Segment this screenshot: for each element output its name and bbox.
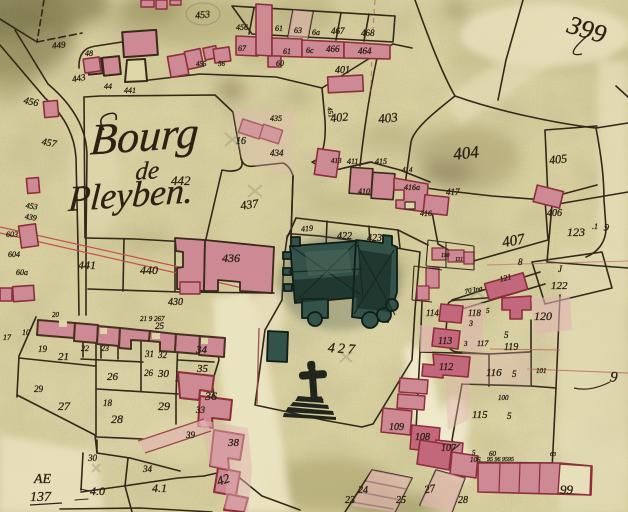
svg-text:413: 413 [331, 157, 342, 165]
svg-text:18: 18 [103, 398, 113, 408]
svg-text:48: 48 [85, 49, 93, 58]
svg-text:441: 441 [124, 86, 136, 95]
svg-text:116: 116 [486, 367, 502, 379]
svg-text:436: 436 [222, 251, 240, 265]
svg-text:3: 3 [463, 340, 468, 348]
svg-text:8: 8 [518, 257, 523, 267]
svg-text:61: 61 [283, 47, 291, 56]
svg-text:35: 35 [196, 363, 209, 375]
svg-text:34: 34 [142, 464, 153, 474]
svg-text:21: 21 [58, 351, 69, 363]
svg-text:100: 100 [498, 394, 509, 402]
svg-text:107: 107 [441, 443, 457, 454]
svg-text:38: 38 [227, 437, 240, 449]
svg-text:20: 20 [52, 311, 60, 319]
svg-text:118: 118 [468, 308, 481, 318]
svg-text:23: 23 [101, 344, 109, 353]
svg-text:4.1: 4.1 [152, 481, 167, 495]
svg-text:29: 29 [158, 399, 170, 413]
svg-text:28: 28 [111, 412, 123, 426]
svg-text:427: 427 [327, 341, 358, 358]
svg-text:32: 32 [157, 350, 168, 360]
svg-text:442: 442 [171, 173, 191, 188]
svg-text:404: 404 [452, 142, 480, 164]
svg-text:453: 453 [25, 201, 38, 212]
svg-text:63: 63 [550, 452, 556, 458]
svg-text:417: 417 [446, 187, 460, 197]
svg-text:109: 109 [389, 422, 404, 433]
svg-text:6c: 6c [306, 46, 314, 55]
svg-text:120: 120 [534, 309, 552, 323]
svg-text:410: 410 [358, 187, 370, 196]
svg-text:16: 16 [236, 136, 246, 147]
svg-text:405: 405 [548, 151, 567, 167]
svg-text:39: 39 [185, 430, 196, 440]
svg-text:.1: .1 [592, 222, 598, 231]
svg-text:95 96 9595: 95 96 9595 [487, 457, 514, 463]
svg-text:113: 113 [438, 336, 452, 347]
svg-text:416a: 416a [404, 183, 420, 192]
svg-text:29: 29 [34, 384, 44, 394]
svg-text:453: 453 [195, 9, 211, 22]
svg-text:106: 106 [470, 456, 481, 464]
svg-text:416: 416 [420, 209, 432, 218]
svg-text:439: 439 [24, 212, 37, 223]
svg-text:422: 422 [337, 231, 352, 242]
svg-text:5: 5 [512, 369, 517, 379]
svg-text:22: 22 [81, 344, 89, 353]
svg-text:28: 28 [458, 495, 468, 506]
svg-text:10: 10 [22, 328, 30, 337]
svg-text:401: 401 [335, 65, 350, 76]
svg-text:26: 26 [107, 371, 119, 383]
svg-text:419: 419 [301, 224, 314, 234]
svg-text:5: 5 [486, 307, 490, 315]
svg-text:67: 67 [238, 44, 247, 53]
svg-text:467: 467 [331, 26, 345, 36]
svg-text:434: 434 [270, 148, 284, 158]
svg-text:27: 27 [58, 399, 71, 413]
svg-text:44: 44 [104, 82, 112, 91]
svg-text:112: 112 [439, 362, 453, 373]
svg-text:5: 5 [504, 330, 509, 340]
svg-text:114: 114 [426, 308, 439, 318]
svg-text:4.0: 4.0 [90, 484, 105, 498]
svg-text:6a: 6a [312, 28, 320, 37]
svg-text:108: 108 [415, 432, 430, 443]
svg-text:423: 423 [367, 233, 382, 244]
svg-text:468: 468 [361, 28, 375, 38]
svg-text:117: 117 [477, 339, 489, 348]
svg-text:411: 411 [347, 157, 358, 166]
svg-text:456: 456 [236, 23, 248, 32]
svg-text:17: 17 [3, 333, 12, 342]
svg-text:455: 455 [196, 60, 207, 68]
svg-text:AE: AE [33, 472, 52, 487]
svg-text:23: 23 [345, 495, 355, 506]
svg-text:122: 122 [551, 280, 568, 292]
svg-text:466: 466 [326, 44, 340, 54]
svg-text:437: 437 [239, 196, 260, 213]
svg-text:406: 406 [547, 208, 562, 219]
svg-text:111: 111 [455, 257, 463, 263]
svg-text:464: 464 [358, 46, 372, 56]
svg-text:19: 19 [38, 344, 48, 354]
svg-text:435: 435 [270, 114, 282, 123]
svg-text:33: 33 [195, 405, 206, 415]
svg-text:56: 56 [218, 60, 226, 68]
svg-text:449: 449 [52, 39, 67, 50]
svg-text:30: 30 [157, 368, 170, 380]
svg-text:415: 415 [375, 157, 387, 166]
svg-text:34: 34 [195, 344, 208, 356]
svg-text:115: 115 [472, 409, 488, 421]
svg-text:31: 31 [144, 349, 154, 359]
svg-text:24: 24 [358, 485, 368, 496]
svg-text:26: 26 [144, 368, 154, 378]
svg-text:123: 123 [567, 225, 585, 239]
svg-text:60a: 60a [16, 268, 28, 277]
svg-text:30: 30 [87, 453, 98, 463]
svg-text:604: 604 [8, 250, 20, 259]
svg-text:441: 441 [78, 258, 96, 272]
svg-text:36: 36 [204, 389, 217, 403]
svg-text:101: 101 [536, 367, 547, 375]
svg-text:110: 110 [441, 253, 450, 259]
svg-text:61: 61 [275, 24, 283, 33]
svg-text:21 9 267: 21 9 267 [140, 315, 165, 323]
svg-text:60: 60 [276, 59, 284, 68]
svg-text:119: 119 [504, 342, 518, 353]
svg-text:25: 25 [396, 495, 406, 506]
svg-text:99: 99 [560, 482, 574, 497]
svg-text:603: 603 [6, 230, 18, 239]
svg-text:430: 430 [168, 297, 183, 308]
svg-text:137: 137 [30, 490, 52, 505]
svg-text:Bourg: Bourg [89, 108, 201, 165]
svg-text:403: 403 [377, 109, 398, 126]
svg-text:414: 414 [402, 166, 413, 174]
svg-text:3: 3 [468, 319, 473, 328]
svg-text:440: 440 [140, 263, 158, 277]
svg-text:63: 63 [294, 26, 302, 35]
svg-text:5: 5 [507, 411, 512, 421]
